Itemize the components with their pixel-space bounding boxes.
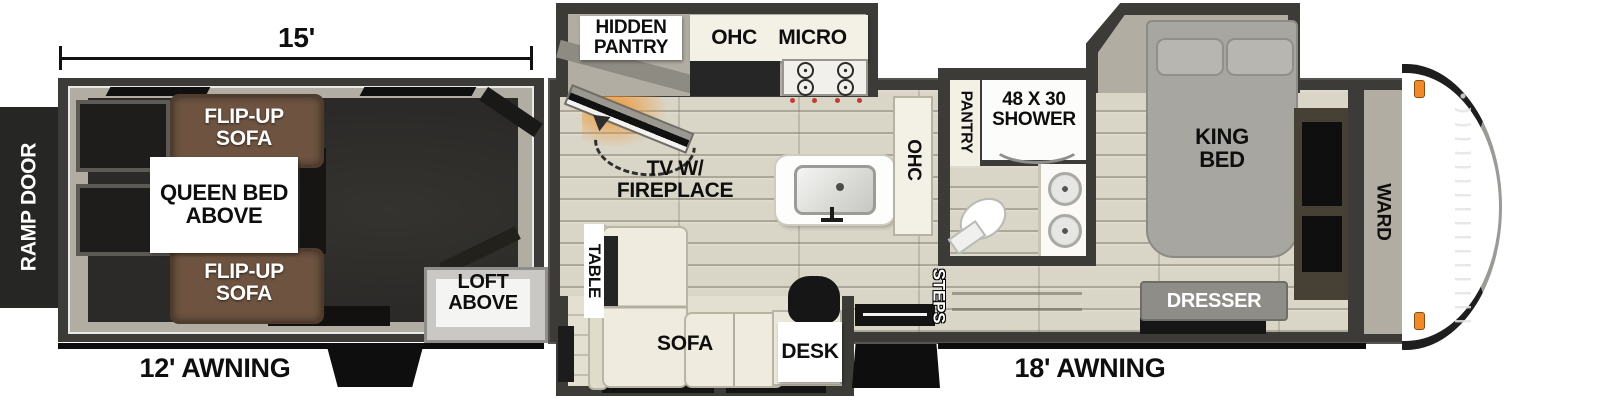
stove-burner-icon — [797, 79, 814, 96]
entry-threshold-stripe — [863, 313, 927, 316]
table-label-box — [584, 224, 604, 318]
dimension-tick-right — [530, 46, 533, 70]
kitchen-side-cabinet — [893, 96, 933, 236]
ramp-door — [0, 107, 58, 308]
bed-pillow-icon — [1156, 38, 1224, 76]
right-awning-line — [938, 343, 1366, 349]
shower-glass-icon — [990, 122, 1084, 164]
dimension-tick-left — [59, 46, 62, 70]
step-line — [952, 292, 1082, 295]
bed-pillow-icon — [1226, 38, 1294, 76]
left-awning-line — [58, 343, 544, 349]
sofa-label: SOFA — [640, 330, 730, 358]
faucet-base-icon — [821, 218, 843, 222]
dresser-label: DRESSER — [1140, 283, 1288, 319]
stove-burner-icon — [837, 79, 854, 96]
front-cap — [1402, 64, 1502, 350]
kitchen-overhead-cabinet: OHC MICRO — [690, 15, 868, 61]
garage-length-dimension-label: 15' — [60, 22, 533, 54]
step-line — [952, 308, 1082, 311]
bedroom-tv-shelf-icon — [1302, 216, 1342, 272]
stove-burner-icon — [797, 62, 814, 79]
ohc-top-label: OHC — [711, 27, 757, 49]
wardrobe — [1364, 90, 1402, 334]
bedroom-front-wall — [1348, 90, 1364, 334]
table-surface — [604, 236, 618, 306]
stove-knob-icon — [857, 98, 862, 103]
stove-knob-icon — [790, 98, 795, 103]
marker-light-icon — [1414, 312, 1425, 330]
loft-above-label: LOFT ABOVE — [422, 276, 544, 310]
slideout-side-window-icon — [558, 326, 574, 382]
desk-label: DESK — [778, 322, 842, 382]
dimension-line — [60, 57, 533, 60]
hidden-pantry-label: HIDDEN PANTRY — [580, 16, 682, 60]
floorplan-canvas: 15' RAMP DOOR FLIP-UP SOFA FLIP-UP SOFA … — [0, 0, 1600, 419]
stove-knobs — [790, 98, 862, 103]
entry-step — [852, 344, 940, 388]
garage-entry-step — [326, 343, 424, 387]
king-bed-label: KING BED — [1146, 118, 1298, 180]
stove-knob-icon — [835, 98, 840, 103]
sink-icon — [794, 165, 876, 215]
vanity-sink-icon — [1048, 214, 1082, 248]
bedroom-tv-icon — [1302, 122, 1342, 206]
range-hood-counter — [690, 61, 780, 96]
marker-light-icon — [1414, 80, 1425, 98]
front-cap-texture — [1455, 90, 1471, 326]
flip-up-sofa-top-label: FLIP-UP SOFA — [170, 96, 318, 160]
desk-chair-icon — [788, 276, 840, 324]
tv-fireplace-label: TV W/ FIREPLACE — [598, 156, 752, 204]
stove-cooktop — [782, 59, 868, 96]
pantry-closet — [950, 80, 980, 166]
stove-knob-icon — [812, 98, 817, 103]
right-awning-label: 18' AWNING — [995, 352, 1185, 384]
left-awning-label: 12' AWNING — [100, 352, 330, 384]
vanity-sink-icon — [1048, 172, 1082, 206]
flip-up-sofa-bottom-label: FLIP-UP SOFA — [170, 250, 318, 316]
sink-drain-icon — [836, 183, 844, 191]
stove-burner-icon — [837, 62, 854, 79]
micro-label: MICRO — [778, 27, 847, 49]
ceiling-vent-icon — [360, 87, 477, 96]
queen-bed-above-label: QUEEN BED ABOVE — [150, 157, 298, 253]
